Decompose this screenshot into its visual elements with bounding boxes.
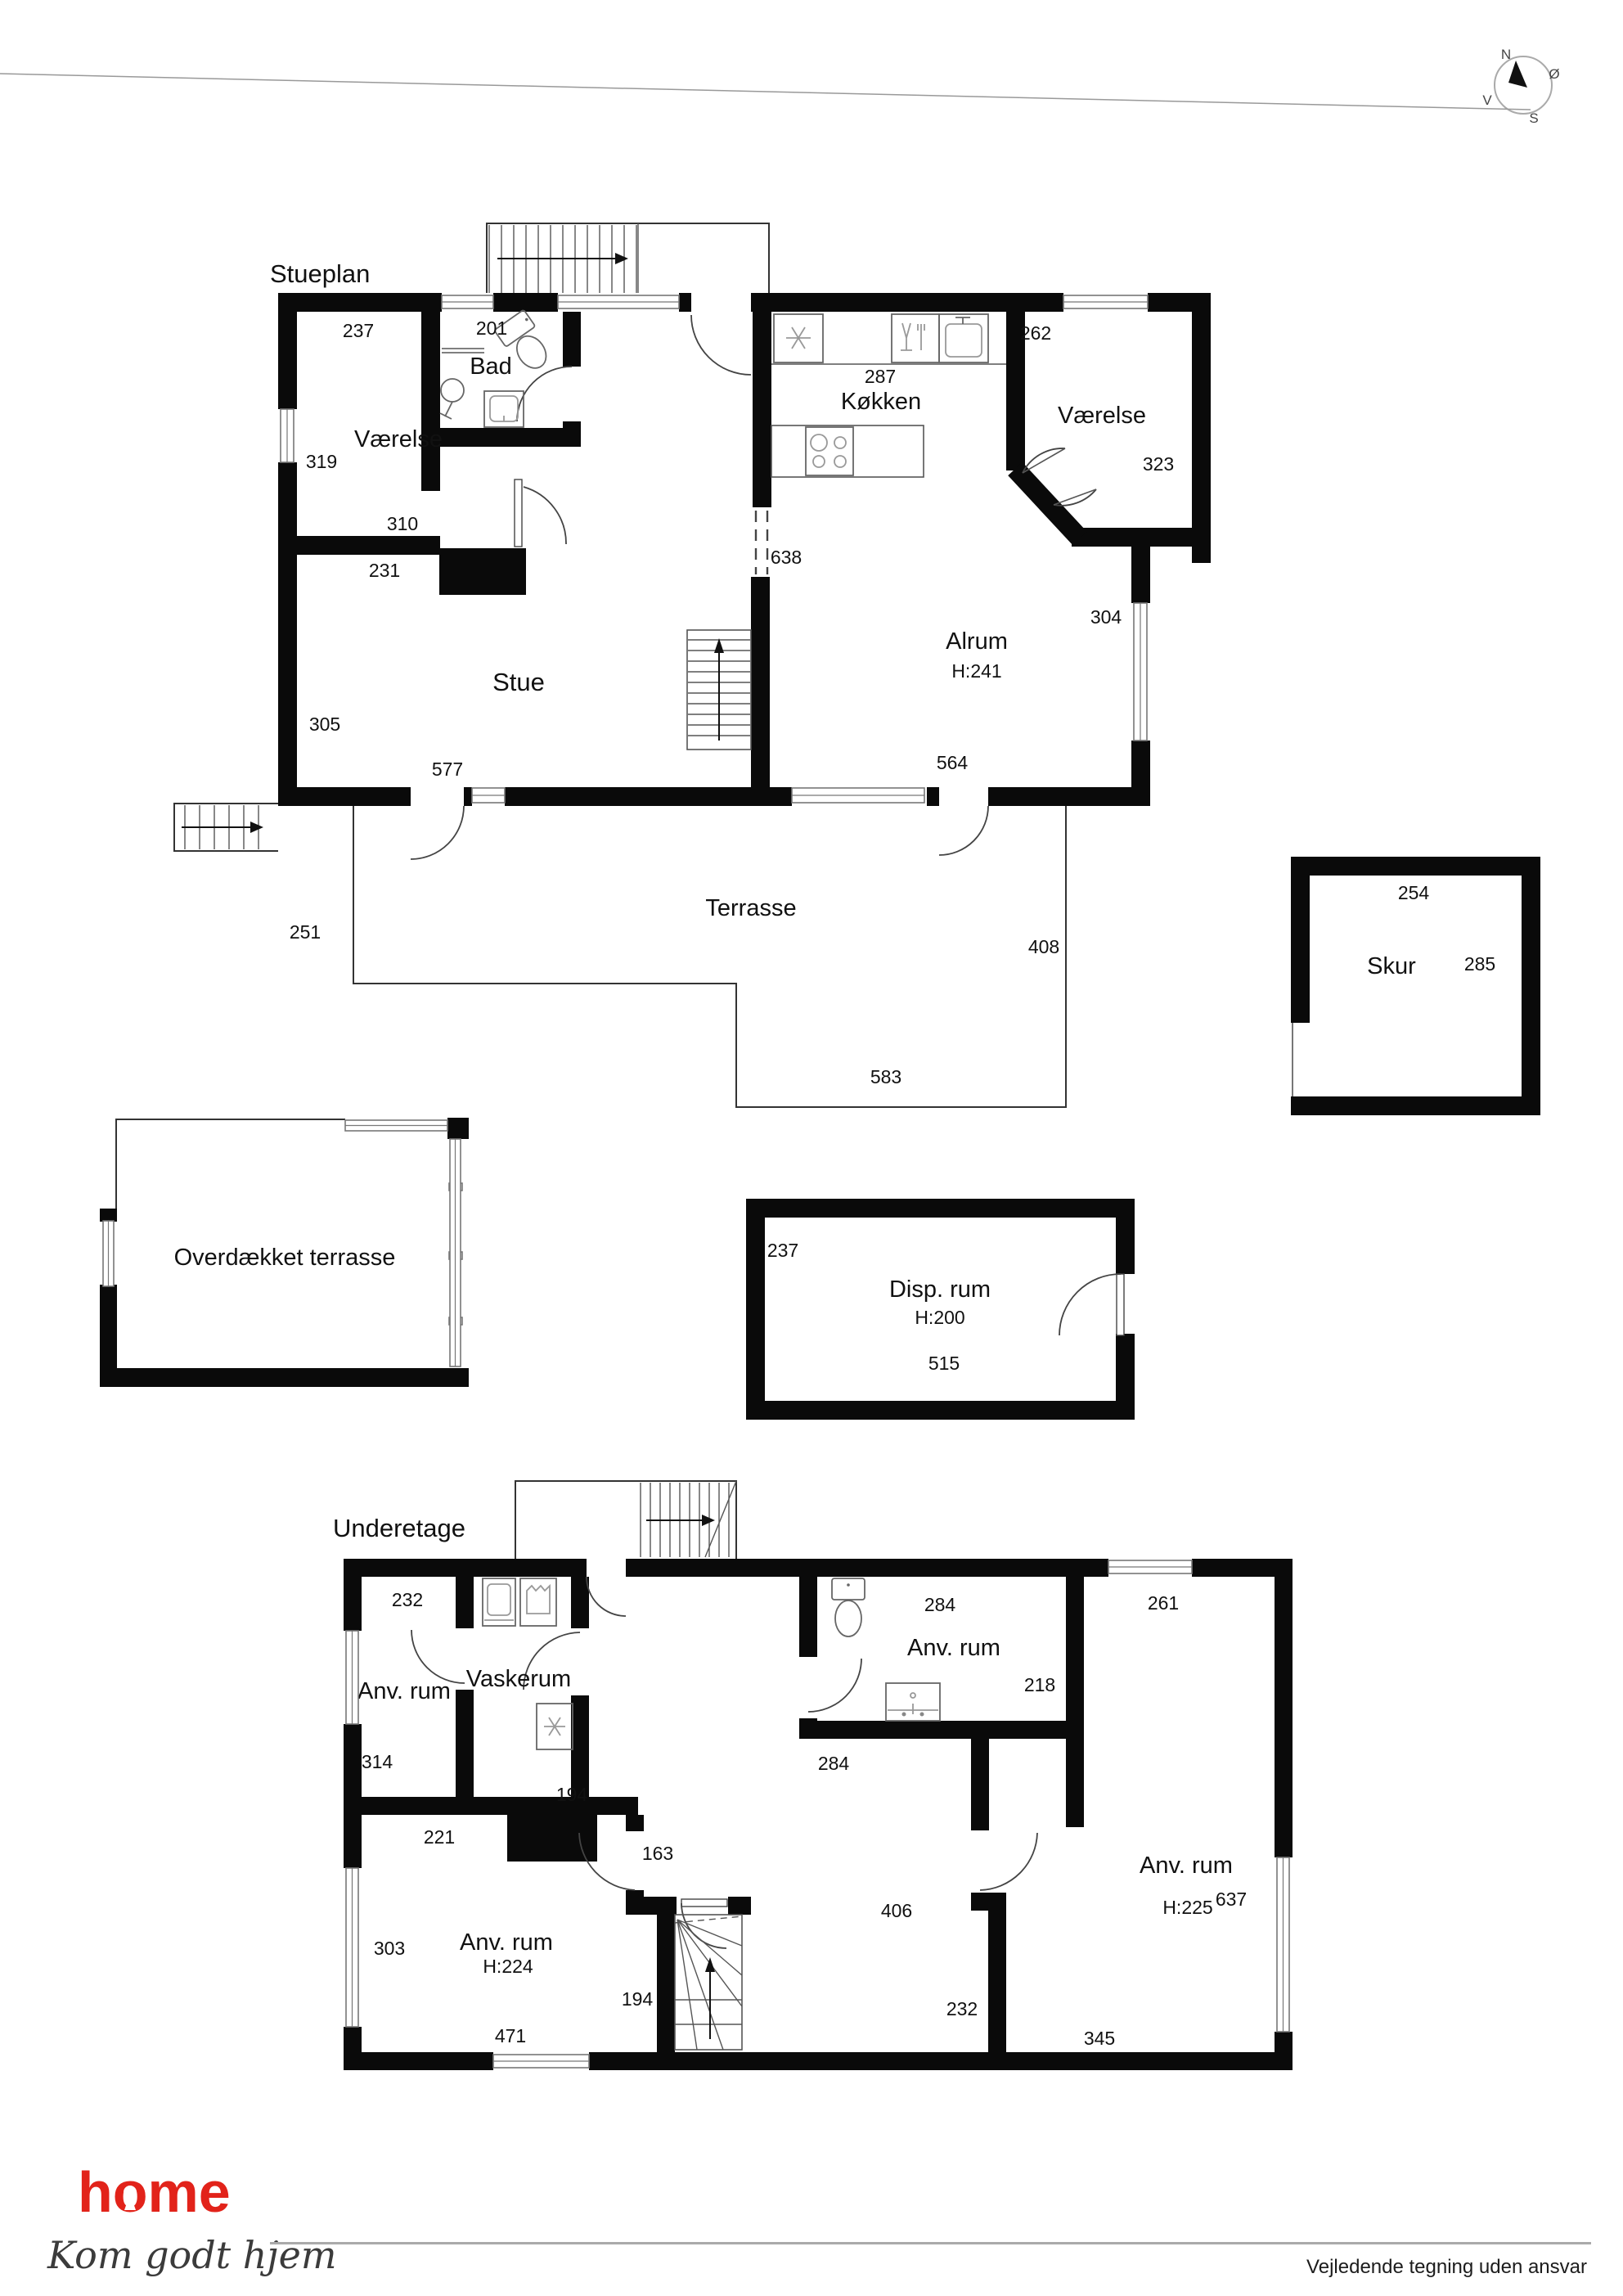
window-glazing: [1134, 603, 1147, 741]
window-glazing: [1063, 295, 1148, 308]
dim-406: 406: [881, 1900, 912, 1921]
dim-564: 564: [937, 752, 969, 773]
room-height-disp: H:200: [915, 1307, 964, 1328]
entry-stairs-top: [487, 223, 769, 293]
stueplan-plan: Stueplan: [174, 223, 1540, 1115]
brand-tagline: Kom godt hjem: [47, 2233, 337, 2277]
dim-285: 285: [1464, 953, 1495, 975]
fridge-icon: [774, 314, 823, 362]
dishwasher-icon: [892, 314, 939, 362]
window-glazing: [281, 409, 294, 462]
window-glazing: [442, 295, 493, 308]
dim-287: 287: [865, 366, 896, 387]
room-label-vaerelse-ne: Værelse: [1058, 403, 1146, 429]
compass-rose: N Ø V S: [0, 47, 1560, 126]
chimney-block: [439, 548, 526, 595]
room-label-anv-nw: Anv. rum: [357, 1678, 451, 1704]
compass-east-label: Ø: [1549, 66, 1559, 82]
footer: home Kom godt hjem Vejledende tegning ud…: [47, 2160, 1591, 2278]
stairs-direction-arrow: [615, 253, 628, 264]
sink-icon-under: [886, 1683, 940, 1721]
window-glazing: [103, 1221, 114, 1286]
room-height-alrum: H:241: [951, 660, 1001, 682]
room-label-anv-e: Anv. rum: [1140, 1853, 1233, 1879]
dim-305: 305: [309, 714, 340, 735]
window-glazing: [472, 788, 505, 803]
window-glazing: [558, 295, 679, 308]
window-glazing: [493, 2055, 589, 2068]
room-label-skur: Skur: [1367, 953, 1416, 979]
dim-254: 254: [1398, 882, 1430, 903]
entry-stairs-under: [515, 1481, 736, 1559]
stove-island: [771, 425, 924, 477]
dim-163: 163: [642, 1843, 673, 1864]
dim-231: 231: [369, 560, 400, 581]
underetage-walls: [344, 1559, 1293, 2070]
compass-needle: [1508, 61, 1527, 88]
exterior-stairs-left: [174, 804, 278, 851]
underetage-doors: [411, 1577, 1037, 1948]
dim-577: 577: [432, 759, 463, 780]
dim-194b: 194: [622, 1988, 654, 2010]
dim-201: 201: [476, 317, 507, 339]
room-label-koekken: Køkken: [841, 389, 921, 415]
window-glazing: [1108, 1560, 1192, 1573]
laundry-tub-icon: [520, 1578, 556, 1626]
dim-583: 583: [870, 1066, 901, 1087]
floorplan-page: N Ø V S Stueplan: [0, 0, 1623, 2296]
dim-637: 637: [1216, 1889, 1247, 1910]
interior-stairs-stueplan: [687, 630, 751, 750]
overdaekket-terrasse: Overdækket terrasse: [100, 1118, 469, 1387]
window-glazing: [346, 1631, 358, 1724]
compass-west-label: V: [1482, 92, 1492, 108]
dim-251: 251: [290, 921, 321, 943]
dim-232a: 232: [392, 1589, 423, 1610]
dim-284a: 284: [924, 1594, 956, 1615]
dim-262: 262: [1020, 322, 1051, 344]
dim-303: 303: [374, 1938, 405, 1959]
room-label-stue: Stue: [492, 668, 545, 696]
footer-disclaimer: Vejledende tegning uden ansvar: [1306, 2256, 1587, 2278]
stueplan-title: Stueplan: [270, 259, 370, 288]
dim-194a: 194: [556, 1784, 588, 1805]
compass-south-label: S: [1529, 110, 1538, 126]
interior-stairs-under: [675, 1915, 742, 2050]
window-glazing: [1277, 1857, 1289, 2032]
toilet-icon-under: [832, 1578, 865, 1636]
dim-314: 314: [362, 1751, 393, 1772]
vaskerum-fixtures: [483, 1578, 573, 1749]
sink-icon: [484, 391, 524, 427]
room-label-anv-mid: Anv. rum: [907, 1635, 1000, 1661]
window-glazing: [345, 1120, 447, 1131]
dim-323: 323: [1143, 453, 1174, 475]
shower-icon: [440, 379, 464, 419]
dim-218: 218: [1024, 1674, 1055, 1695]
dim-237-disp: 237: [767, 1240, 798, 1261]
washing-machine-icon: [483, 1578, 515, 1626]
window-glazing: [792, 788, 924, 803]
underetage-title: Underetage: [333, 1514, 465, 1542]
room-label-anv-sw: Anv. rum: [460, 1929, 553, 1956]
dim-408: 408: [1028, 936, 1059, 957]
dim-310: 310: [387, 513, 418, 534]
stueplan-walls: [278, 293, 1211, 806]
dim-515: 515: [928, 1353, 960, 1374]
freezer-icon: [537, 1704, 573, 1749]
brand-logo-home: home: [78, 2160, 231, 2224]
room-label-disp: Disp. rum: [889, 1276, 991, 1303]
compass-north-label: N: [1501, 47, 1511, 62]
dim-232b: 232: [946, 1998, 978, 2019]
disp-rum: 237 Disp. rum H:200 515: [746, 1199, 1135, 1420]
dim-319: 319: [306, 451, 337, 472]
dim-221: 221: [424, 1826, 455, 1848]
footer-divider: [270, 2242, 1591, 2244]
room-label-vaerelse-nw: Værelse: [354, 426, 443, 452]
room-height-anv-e: H:225: [1162, 1897, 1212, 1918]
dim-345: 345: [1084, 2028, 1115, 2049]
window-glazing: [346, 1868, 358, 2027]
dim-237: 237: [343, 320, 374, 341]
dim-284b: 284: [818, 1753, 850, 1774]
kitchen-sink-icon: [939, 314, 988, 362]
dim-261: 261: [1148, 1592, 1179, 1614]
room-label-overdaekket: Overdækket terrasse: [174, 1245, 396, 1271]
room-label-alrum: Alrum: [946, 628, 1008, 655]
dim-304: 304: [1090, 606, 1122, 628]
room-height-anv-sw: H:224: [483, 1956, 533, 1977]
window-glazing: [450, 1139, 461, 1366]
room-label-vaskerum: Vaskerum: [466, 1666, 571, 1692]
room-label-bad: Bad: [470, 353, 512, 380]
dim-471: 471: [495, 2025, 526, 2046]
dim-638: 638: [771, 547, 802, 568]
room-label-terrasse: Terrasse: [705, 895, 796, 921]
